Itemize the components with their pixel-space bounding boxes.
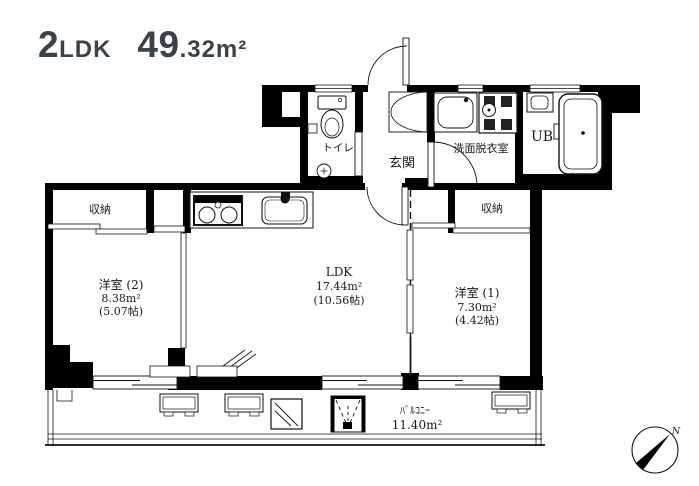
balcony-name: ﾊﾞﾙｺﾆｰ (400, 405, 430, 417)
evacuation-hatch-icon (271, 399, 302, 429)
window-toilet (315, 85, 352, 92)
western-room-1-name: 洋室 (1) (455, 285, 500, 300)
compass-north-label: N (671, 426, 681, 437)
window-western-room-2 (93, 376, 177, 389)
bathtub-icon (559, 94, 602, 174)
window-unit-bath (530, 85, 580, 92)
water-heater-icon (331, 396, 365, 432)
window-western-room-1 (418, 376, 500, 389)
vanity-sink-icon (434, 93, 477, 132)
ac-unit (160, 394, 198, 416)
western-room-1-area: 7.30m² (457, 301, 496, 314)
toilet-icon (308, 96, 346, 138)
entrance-label: 玄関 (389, 156, 415, 171)
ldk-name: LDK (326, 265, 354, 279)
kitchen-counter (190, 192, 313, 228)
closet-sliding-door-left (48, 224, 185, 234)
entrance-door (368, 38, 409, 85)
room-divider-western2 (181, 233, 186, 348)
floor-plan-page: 2 LDK 49 .32m² (0, 0, 699, 486)
window-washroom (458, 85, 483, 92)
western-room-2-area: 8.38m² (101, 292, 140, 305)
kitchen-sink-icon (262, 192, 307, 224)
washing-machine-icon (479, 93, 517, 133)
toilet-door (355, 132, 362, 176)
western-room-2-name: 洋室 (2) (99, 277, 144, 292)
hand-basin-icon (317, 164, 331, 178)
balcony-area: 11.40m² (392, 418, 443, 432)
stove-icon (194, 196, 242, 225)
shoe-cabinet-icon (389, 92, 427, 132)
compass-icon: N (632, 426, 681, 473)
window-ldk (322, 376, 403, 389)
ac-unit (492, 392, 530, 413)
western-room-1-tatami: (4.42帖) (455, 314, 499, 327)
ldk-door (367, 187, 408, 225)
western-room-2-tatami: (5.07帖) (99, 305, 143, 318)
washroom-label: 洗面脱衣室 (454, 141, 509, 155)
closet-sliding-door-right (412, 223, 530, 233)
ac-unit (225, 394, 263, 416)
unit-bath-label: UB (531, 129, 553, 145)
toilet-label: トイレ (322, 142, 354, 154)
closet-left-label: 収納 (89, 203, 111, 216)
ldk-area: 17.44m² (316, 280, 362, 293)
floor-plan-drawing: N トイレ 玄関 洗面脱衣室 UB 収納 収納 洋室 (2) 8.38m² (5… (0, 0, 699, 486)
closet-right-label: 収納 (481, 202, 503, 215)
ldk-hatch-mark (150, 350, 256, 377)
ldk-tatami: (10.56帖) (313, 294, 364, 307)
